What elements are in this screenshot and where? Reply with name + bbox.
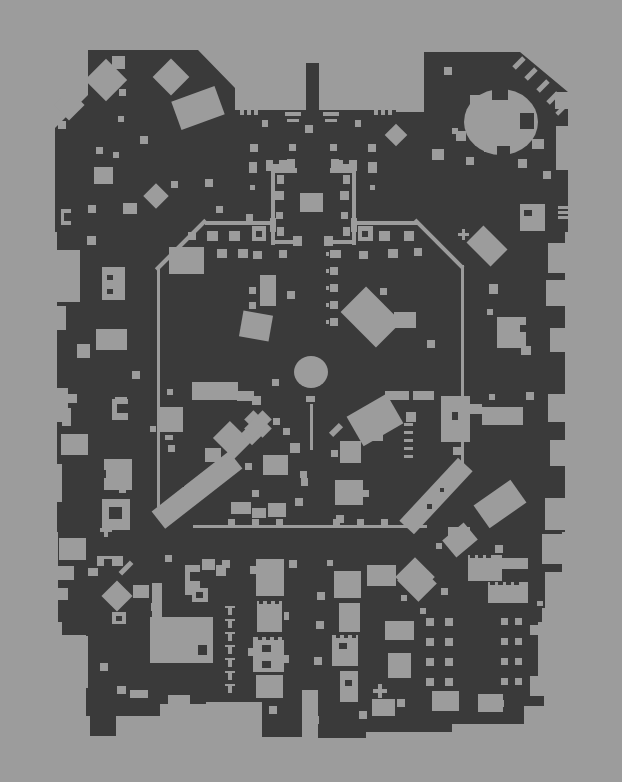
game-map-screenshot bbox=[0, 0, 622, 782]
level-map-canvas bbox=[0, 0, 622, 782]
